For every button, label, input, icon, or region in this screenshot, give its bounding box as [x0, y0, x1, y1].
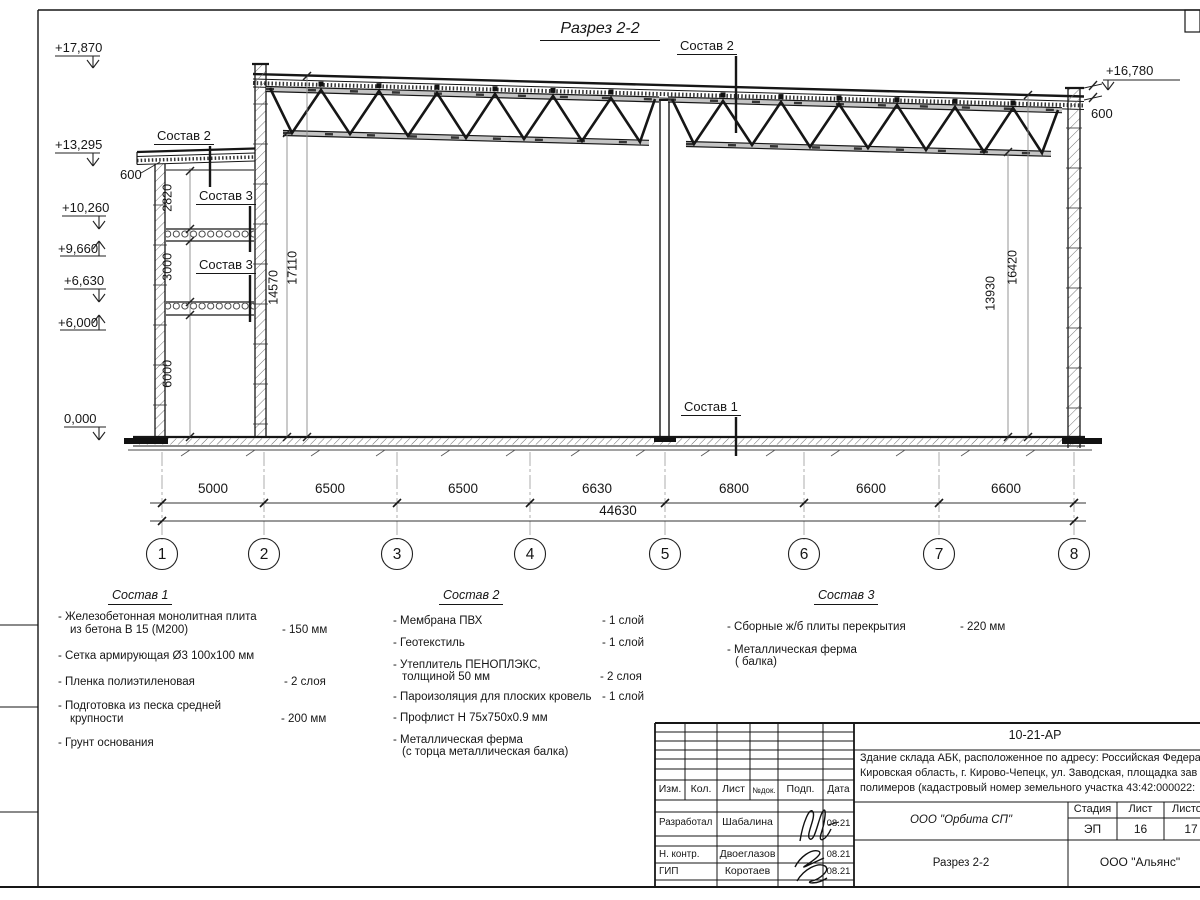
- titleblock-list-value: 16: [1117, 823, 1164, 836]
- titleblock-company: ООО "Альянс": [1075, 856, 1200, 869]
- note-line: толщиной 50 мм: [402, 671, 490, 684]
- note-value: - 1 слой: [602, 615, 644, 628]
- floor-slab: [124, 437, 1102, 456]
- dim-parapet-right-600: 600: [1091, 107, 1113, 121]
- note-line: - Пароизоляция для плоских кровель: [393, 691, 592, 704]
- axis-8: 8: [1059, 546, 1089, 563]
- axis-1: 1: [147, 546, 177, 563]
- note-value: - 150 мм: [282, 624, 327, 637]
- note-line: - Металлическая ферма: [727, 644, 857, 657]
- dim-span-4-5: 6630: [567, 482, 627, 497]
- note-value: - 2 слоя: [284, 676, 326, 689]
- axis-6: 6: [789, 546, 819, 563]
- dim-span-2-3: 6500: [300, 482, 360, 497]
- note-value: - 1 слой: [602, 691, 644, 704]
- callout-sostav2-roof: Состав 2: [677, 39, 737, 55]
- note-line: - Пленка полиэтиленовая: [58, 676, 195, 689]
- elevation-0000: 0,000: [64, 412, 97, 426]
- titleblock-listov-label: Листов: [1172, 803, 1200, 815]
- callout-sostav2-annex: Состав 2: [154, 129, 214, 145]
- note-line: - Железобетонная монолитная плита: [58, 611, 257, 624]
- dim-span-6-7: 6600: [841, 482, 901, 497]
- titleblock-role-razrabotal: Разработал: [659, 818, 712, 829]
- note-line: - Геотекстиль: [393, 637, 465, 650]
- titleblock-name-shabalina: Шабалина: [717, 817, 778, 829]
- titleblock-desc-line2: Кировская область, г. Кирово-Чепецк, ул.…: [860, 768, 1197, 780]
- elevation-marks: [55, 56, 1180, 440]
- titleblock-col-list: Лист: [717, 784, 750, 796]
- titleblock-listov-value: 17: [1164, 823, 1200, 836]
- axis-4: 4: [515, 546, 545, 563]
- dim-span-5-6: 6800: [704, 482, 764, 497]
- note-line: - Профлист Н 75х750х0.9 мм: [393, 712, 548, 725]
- titleblock-role-gip: ГИП: [659, 867, 678, 878]
- note-line: - Подготовка из песка средней: [58, 700, 221, 713]
- titleblock-col-podp: Подп.: [778, 784, 823, 796]
- note-line: (с торца металлическая балка): [402, 746, 568, 759]
- note-line: - Сетка армирующая Ø3 100х100 мм: [58, 650, 254, 663]
- titleblock-desc-line1: Здание склада АБК, расположенное по адре…: [860, 753, 1200, 765]
- note-value: - 220 мм: [960, 621, 1005, 634]
- note-line: крупности: [70, 713, 123, 726]
- titleblock-role-nkontr: Н. контр.: [659, 850, 699, 861]
- callout-sostav3-lower: Состав 3: [196, 258, 256, 274]
- titleblock-col-data: Дата: [823, 784, 854, 795]
- dim-parapet-left-600: 600: [120, 168, 142, 182]
- dim-total: 44630: [578, 504, 658, 519]
- titleblock-name-korotaev: Коротаев: [717, 866, 778, 878]
- dim-span-7-8: 6600: [976, 482, 1036, 497]
- elevation-17870: +17,870: [55, 41, 102, 55]
- axis-3: 3: [382, 546, 412, 563]
- titleblock-col-kol: Кол.: [685, 784, 717, 796]
- dim-annex-2820: 2820: [161, 184, 175, 212]
- note-line: - Утеплитель ПЕНОПЛЭКС,: [393, 659, 541, 672]
- dim-span-3-4: 6500: [433, 482, 493, 497]
- dim-annex-3000: 3000: [161, 253, 175, 281]
- notes-sostav2-title: Состав 2: [439, 589, 503, 605]
- elevation-6000: +6,000: [58, 316, 98, 330]
- callout-sostav1-floor: Состав 1: [681, 400, 741, 416]
- titleblock-date-2: 08.21: [823, 850, 854, 860]
- elevation-13295: +13,295: [55, 138, 102, 152]
- titleblock-code: 10-21-АР: [960, 729, 1110, 743]
- note-line: - Сборные ж/б плиты перекрытия: [727, 621, 906, 634]
- dim-hall-14570: 14570: [267, 270, 281, 305]
- titleblock-org: ООО "Орбита СП": [878, 814, 1044, 827]
- elevation-16780: +16,780: [1106, 64, 1153, 78]
- note-line: ( балка): [735, 656, 777, 669]
- titleblock-col-ndok: №док.: [750, 787, 778, 796]
- note-value: - 1 слой: [602, 637, 644, 650]
- titleblock-col-izm: Изм.: [655, 784, 685, 796]
- elevation-9660: +9,660: [58, 242, 98, 256]
- note-line: - Мембрана ПВХ: [393, 615, 482, 628]
- note-value: - 2 слоя: [600, 671, 642, 684]
- titleblock-stage-label: Стадия: [1068, 803, 1117, 815]
- drawing-title: Разрез 2-2: [540, 20, 660, 41]
- note-line: - Металлическая ферма: [393, 734, 523, 747]
- note-value: - 200 мм: [281, 713, 326, 726]
- titleblock-doc-title: Разрез 2-2: [878, 857, 1044, 870]
- dim-hall-17110: 17110: [286, 251, 300, 285]
- titleblock-name-dvoeglazov: Двоеглазов: [717, 849, 778, 861]
- dim-hall-13930: 13930: [984, 276, 998, 311]
- titleblock-list-label: Лист: [1117, 803, 1164, 815]
- note-line: - Грунт основания: [58, 737, 154, 750]
- notes-sostav3-title: Состав 3: [814, 589, 878, 605]
- dim-hall-16420: 16420: [1006, 250, 1020, 285]
- notes-sostav1-title: Состав 1: [108, 589, 172, 605]
- axis-7: 7: [924, 546, 954, 563]
- elevation-6630: +6,630: [64, 274, 104, 288]
- note-line: из бетона В 15 (М200): [70, 624, 188, 637]
- drawing-sheet: Разрез 2-2 +17,870 +13,295 +10,260 +9,66…: [0, 0, 1200, 900]
- titleblock-date-3: 08.21: [823, 867, 854, 877]
- vertical-dim-lines: [186, 72, 1032, 441]
- titleblock-stage-value: ЭП: [1068, 823, 1117, 836]
- titleblock-date-1: 08.21: [823, 819, 854, 829]
- elevation-10260: +10,260: [62, 201, 109, 215]
- dim-annex-6000: 6000: [161, 360, 175, 388]
- callout-sostav3-upper: Состав 3: [196, 189, 256, 205]
- dim-span-1-2: 5000: [183, 482, 243, 497]
- axis-5: 5: [650, 546, 680, 563]
- axis-2: 2: [249, 546, 279, 563]
- titleblock-desc-line3: полимеров (кадастровый номер земельного …: [860, 783, 1195, 795]
